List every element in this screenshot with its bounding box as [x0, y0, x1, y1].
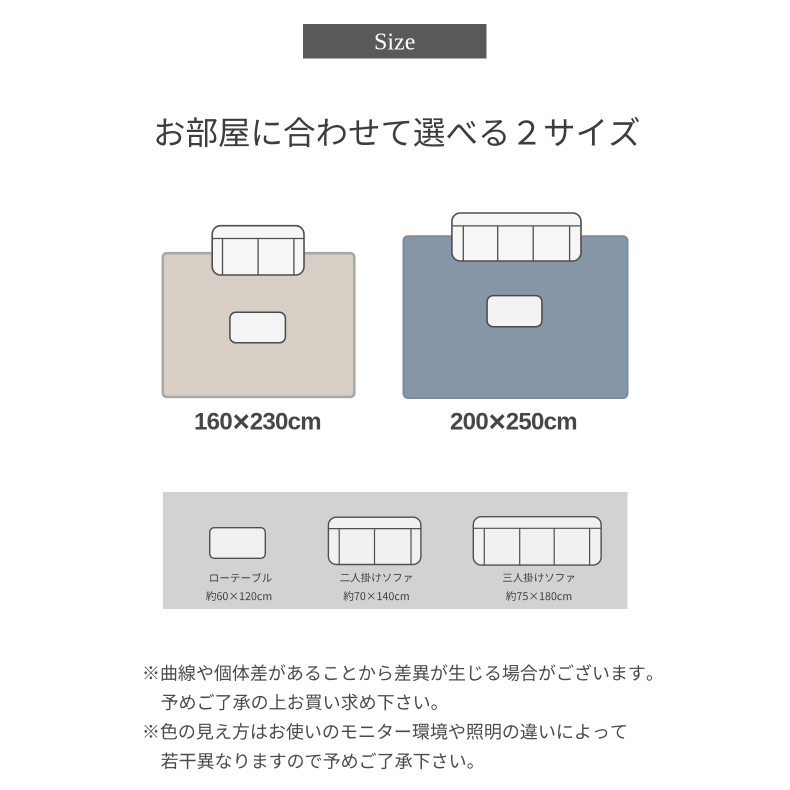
svg-text:160×230cm: 160×230cm [194, 405, 321, 438]
svg-text:200×250cm: 200×250cm [450, 405, 577, 438]
svg-text:Size: Size [374, 29, 415, 55]
